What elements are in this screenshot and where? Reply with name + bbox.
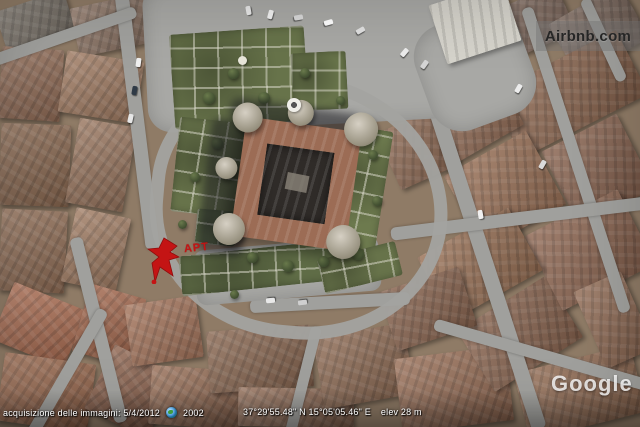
tree bbox=[190, 172, 200, 182]
castle bbox=[219, 103, 375, 263]
airbnb-watermark: Airbnb.com bbox=[536, 21, 640, 51]
history-year-text: 2002 bbox=[183, 408, 204, 418]
building-block bbox=[124, 295, 204, 366]
car bbox=[298, 300, 307, 306]
tree bbox=[230, 290, 239, 299]
tree bbox=[203, 92, 215, 104]
tree bbox=[300, 68, 310, 78]
building-block bbox=[0, 208, 68, 293]
imagery-date-text: acquisizione delle immagini: 5/4/2012 bbox=[3, 408, 160, 418]
satellite-map[interactable]: Airbnb.com APT acquisizione delle immagi… bbox=[0, 0, 640, 427]
fountain-dot bbox=[238, 56, 247, 65]
tree bbox=[247, 252, 258, 263]
tree bbox=[372, 196, 382, 206]
tree bbox=[228, 68, 239, 79]
coordinates-readout: 37°29'55.48" N 15°05'05.46" E elev 28 m bbox=[243, 407, 422, 417]
building-block bbox=[0, 123, 71, 207]
elevation-text: elev 28 m bbox=[381, 407, 422, 417]
tree bbox=[282, 260, 294, 272]
car bbox=[266, 298, 275, 304]
lat-lon-text: 37°29'55.48" N 15°05'05.46" E bbox=[243, 407, 371, 417]
building-block bbox=[65, 118, 137, 213]
imagery-attribution: acquisizione delle immagini: 5/4/2012 20… bbox=[3, 407, 204, 418]
tree bbox=[178, 220, 187, 229]
tree bbox=[336, 96, 345, 105]
globe-icon bbox=[166, 407, 177, 418]
monument-circle bbox=[287, 98, 301, 112]
google-logo: Google bbox=[551, 371, 633, 397]
